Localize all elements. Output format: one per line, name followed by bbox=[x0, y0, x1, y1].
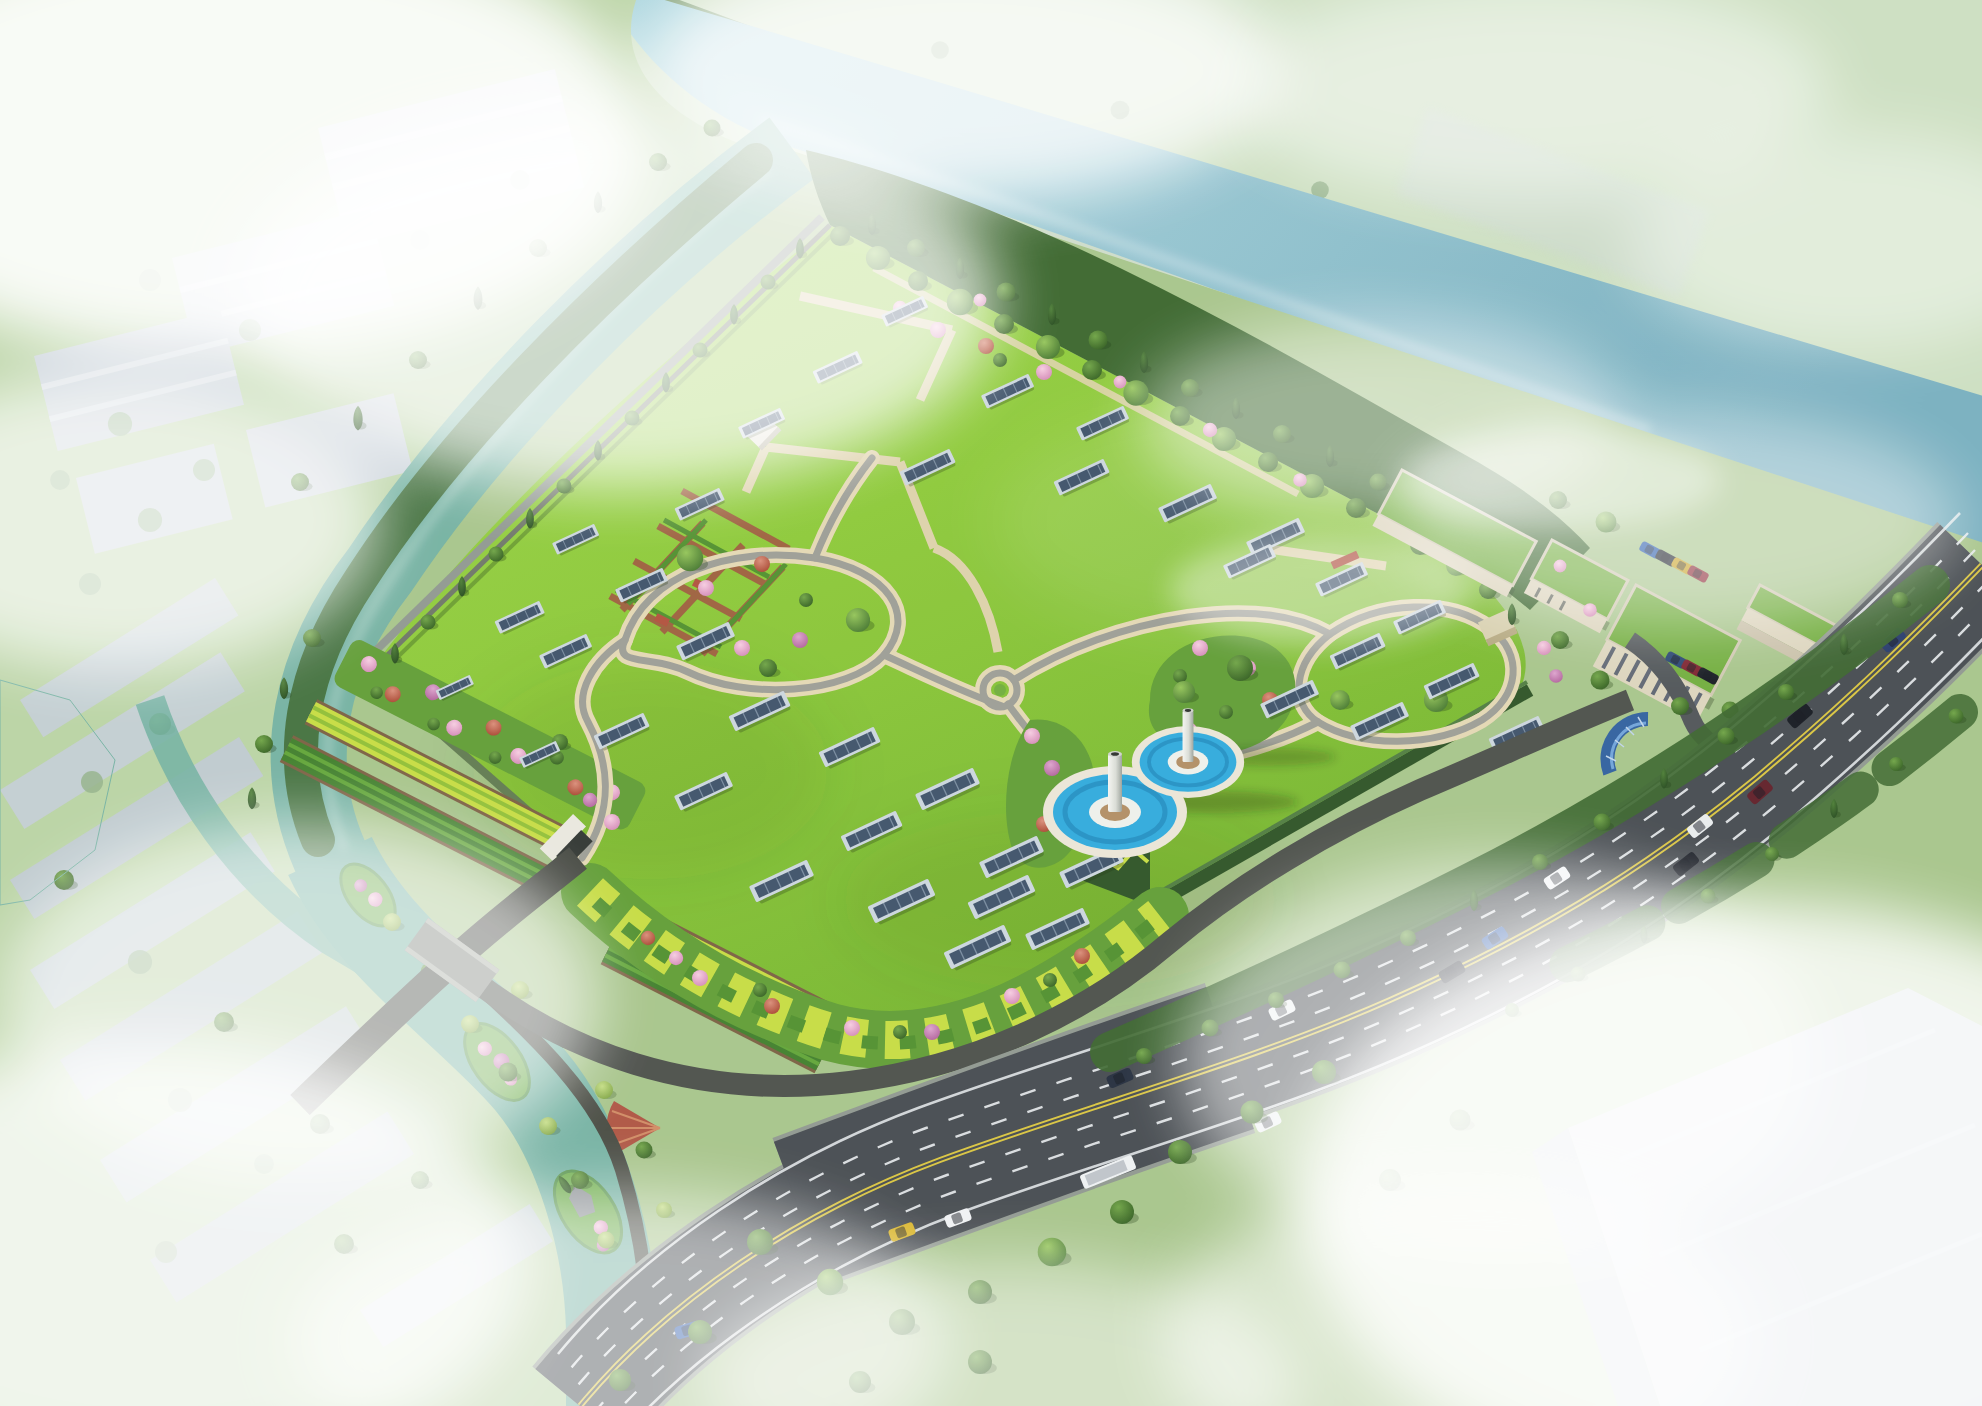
atmospheric-haze bbox=[0, 0, 1982, 1406]
aerial-rendering: Aerial rendering of a riverside green-ro… bbox=[0, 0, 1982, 1406]
rendering-canvas: Aerial rendering of a riverside green-ro… bbox=[0, 0, 1982, 1406]
